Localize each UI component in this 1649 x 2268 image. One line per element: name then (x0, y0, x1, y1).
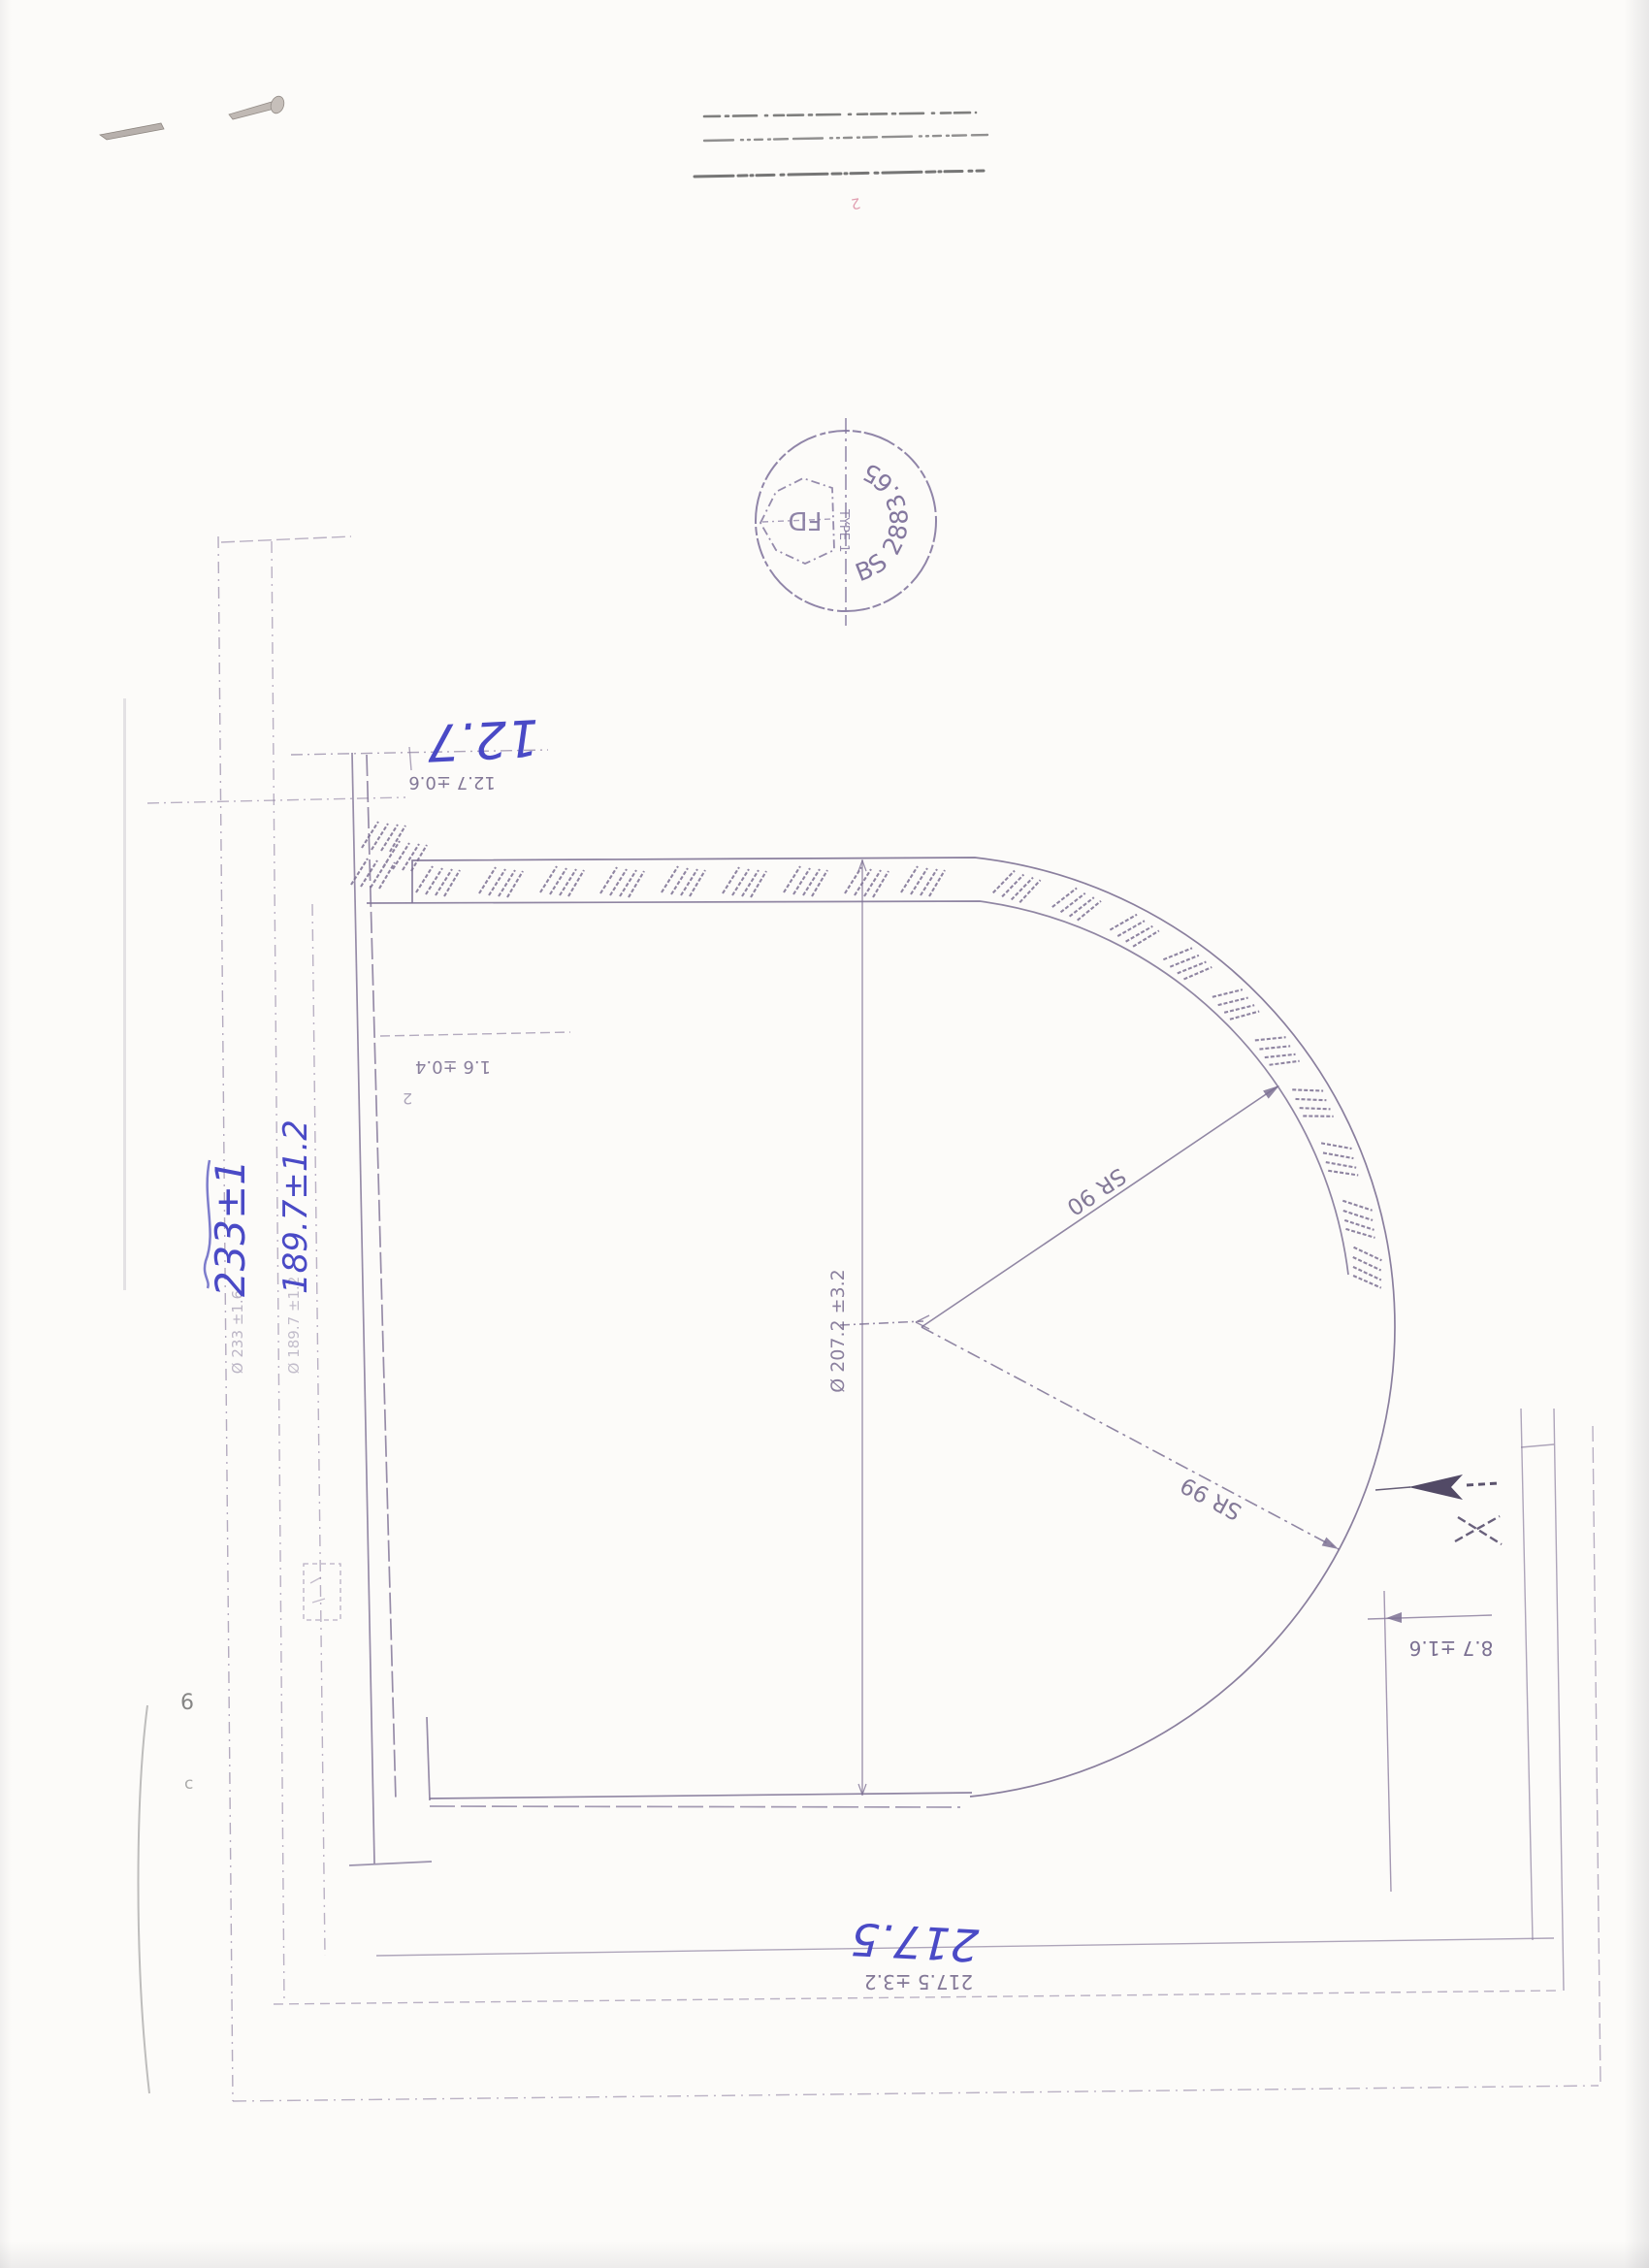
scanned-drawing-page: 2 6 c FD TYPE 1 BS 2883.65 (0, 0, 1649, 2268)
stray-mark-c: c (184, 1774, 193, 1794)
inspection-stamp: FD TYPE 1 BS 2883.65 (756, 418, 936, 626)
dim-step-item: 2 (403, 1089, 412, 1108)
dim-depth: 217.5 ±3.2 (864, 1970, 973, 1993)
stamp-monogram: FD (789, 505, 823, 535)
hand-inner-diameter: 189.7±1.2 (276, 1119, 315, 1294)
profile-linework (349, 753, 1395, 1865)
smudged-header-lines (695, 113, 987, 177)
stray-mark-6: 6 (180, 1691, 194, 1715)
dim-knuckle: 8.7 ±1.6 (1409, 1636, 1494, 1660)
scan-streak (123, 698, 126, 1290)
orientation-marks (1375, 1474, 1502, 1544)
border-linework (147, 536, 1600, 2101)
page-curl-line (139, 1705, 150, 2093)
handwritten-annotations: 12.7 233±1 189.7±1.2 217.5 (207, 707, 980, 1971)
radius-leaders (840, 1082, 1341, 1554)
dim-step: 1.6 ±0.4 (415, 1056, 491, 1077)
drawing-canvas: 2 6 c FD TYPE 1 BS 2883.65 (0, 0, 1649, 2268)
dim-bore-diameter: Ø 207.2 ±3.2 (827, 1269, 849, 1393)
dimension-linework (291, 747, 1492, 1892)
dim-sr-outer: SR 99 (1177, 1472, 1246, 1524)
section-hatching (351, 822, 1385, 1291)
hand-thickness: 12.7 (426, 707, 541, 771)
stamp-type-label: TYPE 1 (836, 508, 851, 552)
photographed-pin (100, 94, 286, 140)
dim-sr-inner: SR 90 (1062, 1162, 1130, 1219)
hand-outer-diameter: 233±1 (207, 1159, 254, 1297)
stray-pink-mark: 2 (850, 194, 862, 212)
detail-box (304, 1564, 340, 1620)
dim-thickness: 12.7 ±0.6 (408, 772, 496, 793)
stamp-code: BS 2883.65 (852, 457, 914, 588)
x-mark (1455, 1516, 1502, 1544)
dim-outer-diameter: Ø 233 ±1.6 (229, 1290, 246, 1374)
printed-dimensions: 12.7 ±0.6 1.6 ±0.4 2 8.7 ±1.6 217.5 ±3.2… (229, 772, 1493, 1993)
hand-depth: 217.5 (850, 1913, 980, 1972)
solid-arrow-mark (1408, 1474, 1463, 1500)
